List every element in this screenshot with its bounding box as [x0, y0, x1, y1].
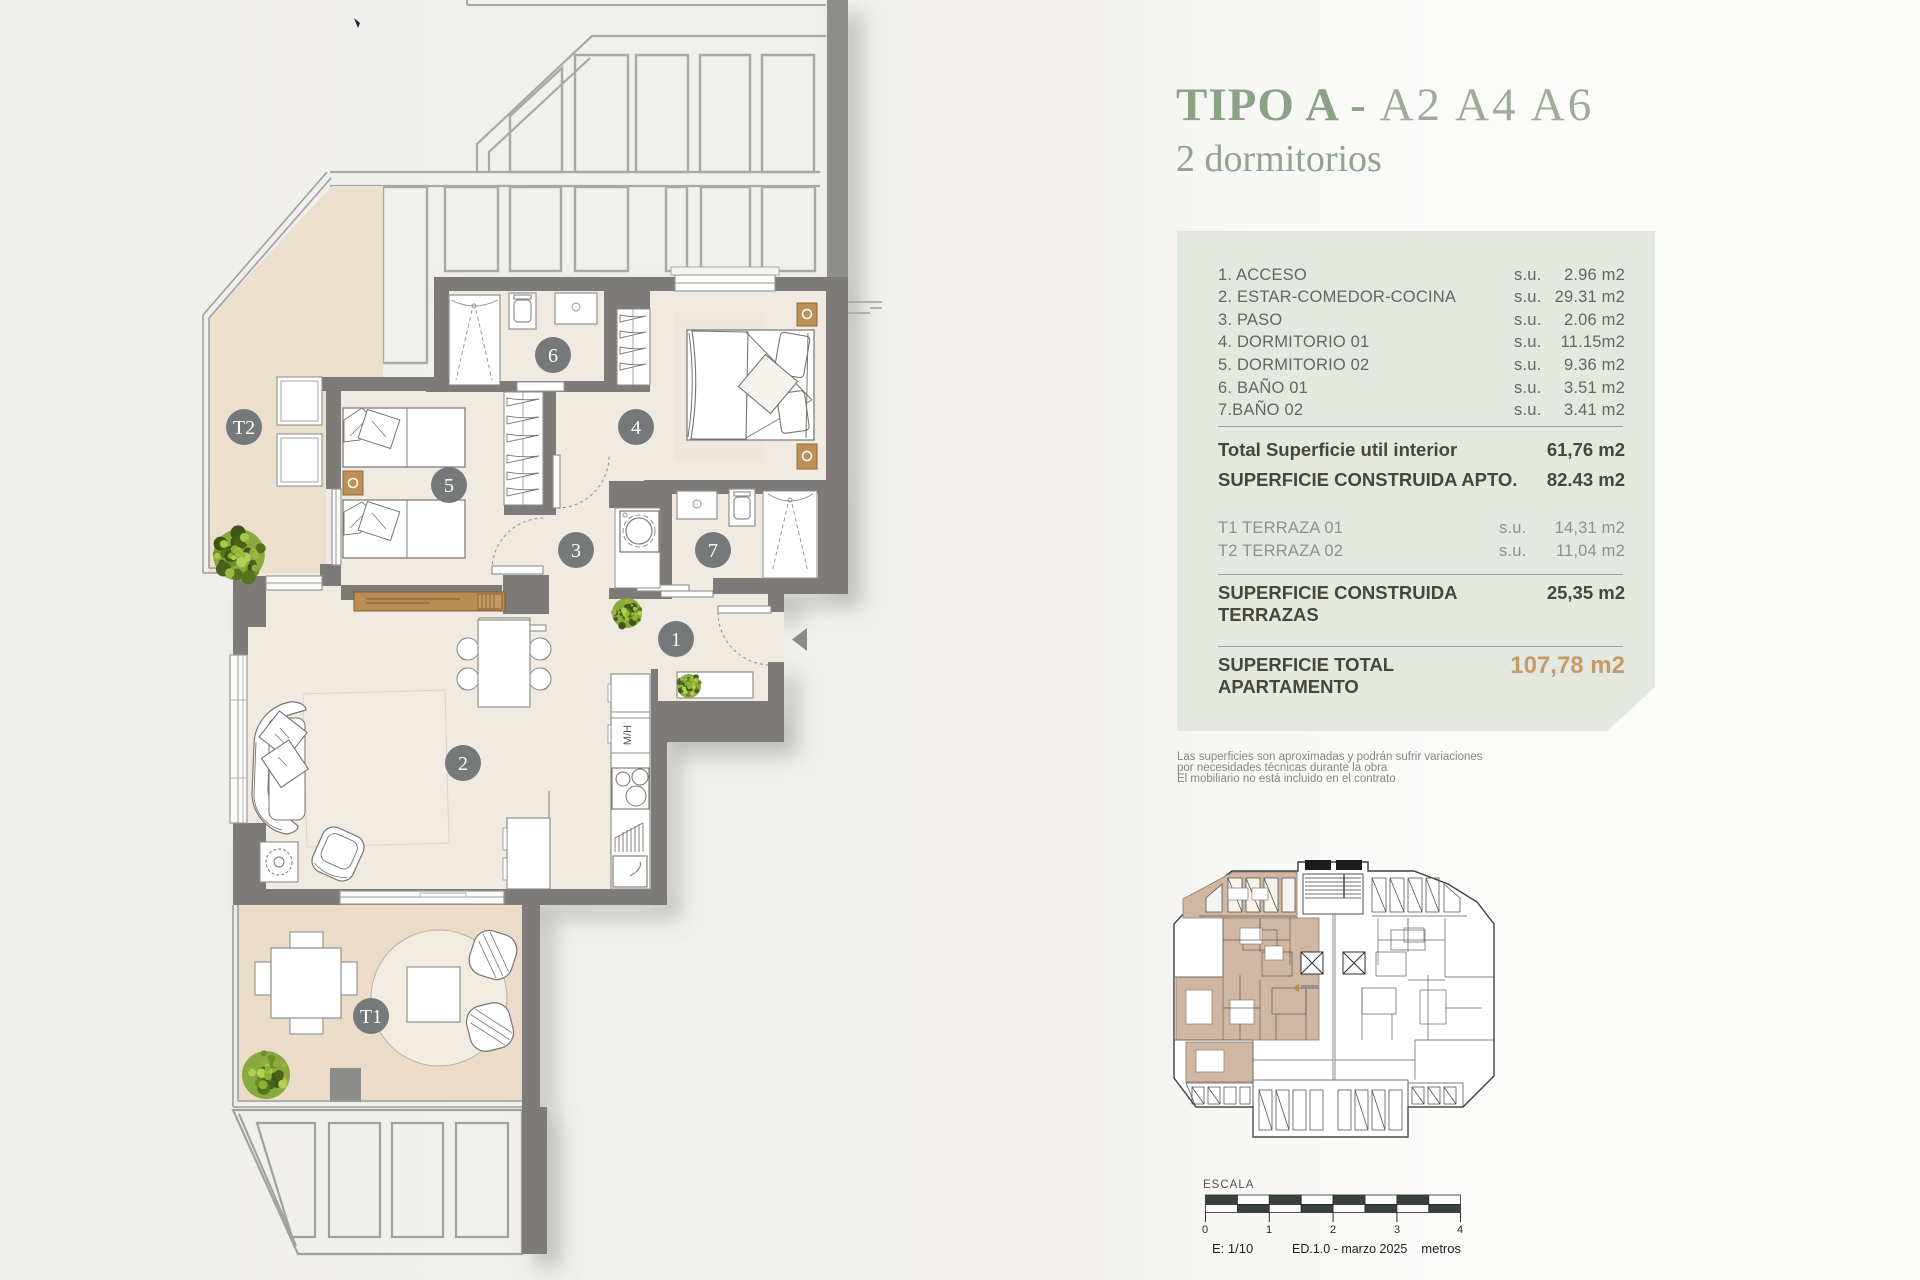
svg-text:3: 3: [1394, 1224, 1400, 1236]
svg-text:ED.1.0 - marzo 2025: ED.1.0 - marzo 2025: [1292, 1242, 1407, 1256]
svg-text:2: 2: [1330, 1224, 1336, 1236]
svg-text:metros: metros: [1421, 1241, 1461, 1256]
svg-text:E: 1/10: E: 1/10: [1212, 1241, 1253, 1256]
svg-text:4: 4: [1457, 1224, 1463, 1236]
svg-text:ESCALA: ESCALA: [1203, 1179, 1254, 1191]
svg-text:1: 1: [1266, 1224, 1272, 1236]
svg-text:0: 0: [1202, 1224, 1208, 1236]
